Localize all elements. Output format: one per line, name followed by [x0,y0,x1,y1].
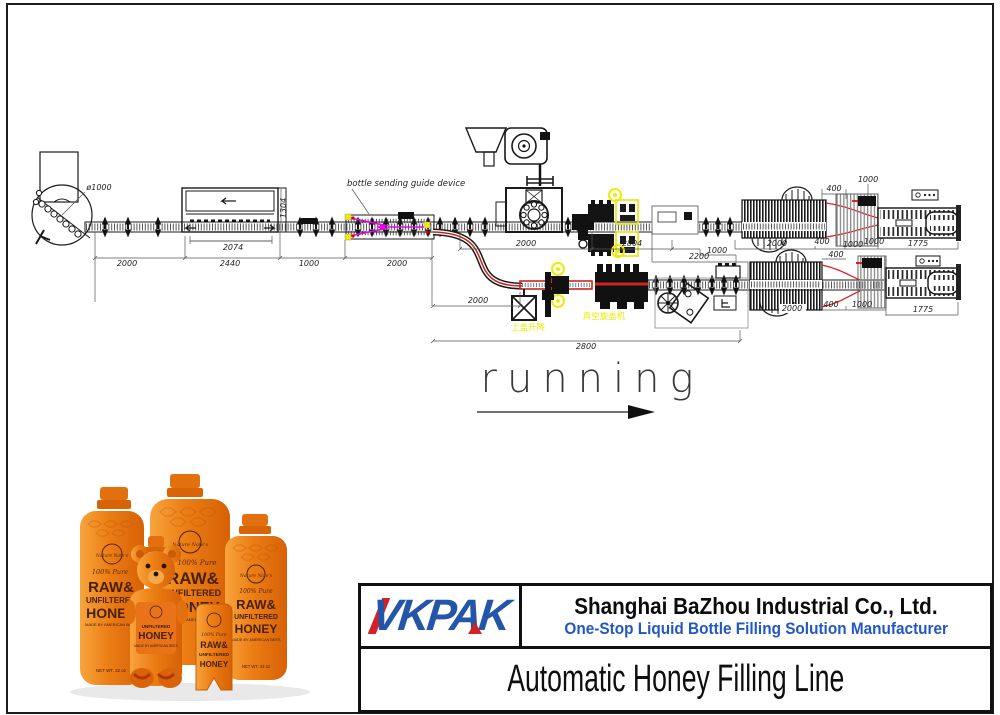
svg-text:HONEY: HONEY [235,622,278,636]
infeed-turntable [32,152,92,245]
vacuum-capping-machine [595,264,648,309]
svg-text:100% Pure: 100% Pure [201,632,227,638]
honey-bear-bottle: UNFILTERED HONEY MADE BY AMERICAN BEES [124,536,188,688]
product-title: Automatic Honey Filling Line [507,658,844,701]
dim-label: 2804 [622,239,642,248]
sorting-machine [182,188,286,241]
guide-device-label: bottle sending guide device [347,179,465,189]
s-curve-transfer [433,232,522,286]
honey-sample-packet: 100% Pure RAW& UNFILTERED HONEY [196,604,232,690]
labeling-machine [655,263,748,328]
capping-station [588,189,698,257]
running-arrow [477,405,655,419]
screenshot-canvas: 2000 2440 1000 2000 2074 1304 ø1000 2000… [0,0,1000,715]
dim-label: 400 [823,300,838,309]
title-block: VKPAK Shanghai BaZhou Industrial Co., Lt… [358,583,993,713]
svg-text:RAW&: RAW& [236,597,276,612]
svg-text:NET WT. 32 oz: NET WT. 32 oz [242,664,270,669]
svg-text:100% Pure: 100% Pure [92,568,128,576]
dim-label: 400 [828,250,843,259]
dim-label: 2000 [782,304,802,313]
logo-text: VKPAK [369,591,510,641]
honey-bottle-medium-right: Nature Nate's 100% Pure RAW& UNFILTERED … [225,514,287,680]
dim-label: 2000 [468,296,488,305]
running-label: running [462,356,722,402]
dim-label: 2000 [516,239,536,248]
svg-text:RAW&: RAW& [88,579,134,596]
company-tagline: One-Stop Liquid Bottle Filling Solution … [564,620,948,638]
svg-text:UNFILTERED: UNFILTERED [142,624,171,629]
svg-text:100% Pure: 100% Pure [239,588,273,595]
svg-text:MADE BY AMERICAN BEES: MADE BY AMERICAN BEES [134,644,179,648]
dim-label: 1304 [279,198,288,218]
svg-text:Nature Nate's: Nature Nate's [95,553,129,559]
svg-text:NET WT. 32 oz: NET WT. 32 oz [96,668,127,673]
dim-label: 2000 [387,259,407,268]
dim-label: 2800 [576,342,596,351]
dim-label: 1000 [707,246,727,255]
svg-text:Nature Nate's: Nature Nate's [239,573,273,579]
svg-text:HONEY: HONEY [138,631,174,642]
honey-product-photo: Nature Nate's 100% Pure RAW& UNFILTERED … [30,462,360,712]
dim-label: 2440 [220,259,240,268]
vkpak-logo: VKPAK [361,586,522,646]
company-name: Shanghai BaZhou Industrial Co., Ltd. [574,594,937,620]
line-pusher [300,218,318,224]
svg-text:RAW&: RAW& [200,640,228,650]
cap-elevator [512,272,554,320]
dim-label: 1775 [913,305,933,314]
svg-text:100% Pure: 100% Pure [178,559,217,567]
dim-label: 400 [826,184,841,193]
dim-label: 1000 [299,259,319,268]
dim-label: 1000 [843,240,863,249]
packing-table-bottom [886,256,961,300]
svg-text:HONEY: HONEY [200,660,229,669]
dim-label: 400 [814,237,829,246]
vacuum-capper-label: 真空旋盖机 [583,311,626,322]
packing-table-top [878,190,961,241]
svg-text:UNFILTERED: UNFILTERED [234,614,278,621]
dim-label-turntable: ø1000 [85,183,111,192]
dim-label: 1000 [852,300,872,309]
dim-label: 2000 [117,259,137,268]
logo-red-triangle [468,622,482,634]
svg-text:MADE BY AMERICAN BEES: MADE BY AMERICAN BEES [231,638,281,642]
svg-text:UNFILTERED: UNFILTERED [199,652,230,658]
cap-feeder-label: 上盖升降 [511,322,546,333]
dim-label: 1775 [908,239,928,248]
dim-label: 1000 [864,237,884,246]
dim-label: 2074 [223,243,243,252]
dim-label: 2000 [767,239,787,248]
dim-label: 1000 [858,175,878,184]
